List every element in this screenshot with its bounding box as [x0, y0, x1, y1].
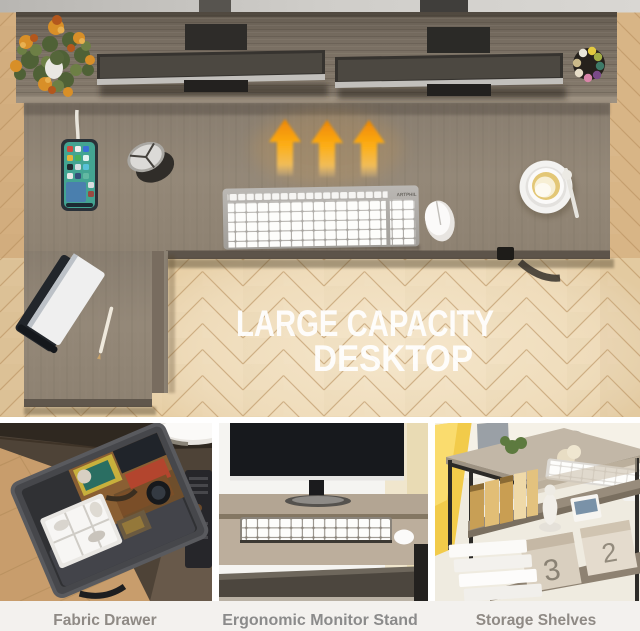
svg-text:ARTPHIL: ARTPHIL: [397, 192, 417, 197]
svg-text:Ergonomic Monitor Stand: Ergonomic Monitor Stand: [222, 612, 418, 629]
svg-text:Storage Shelves: Storage Shelves: [476, 612, 597, 629]
svg-text:DESKTOP: DESKTOP: [313, 338, 473, 379]
svg-text:Fabric Drawer: Fabric Drawer: [53, 612, 156, 629]
